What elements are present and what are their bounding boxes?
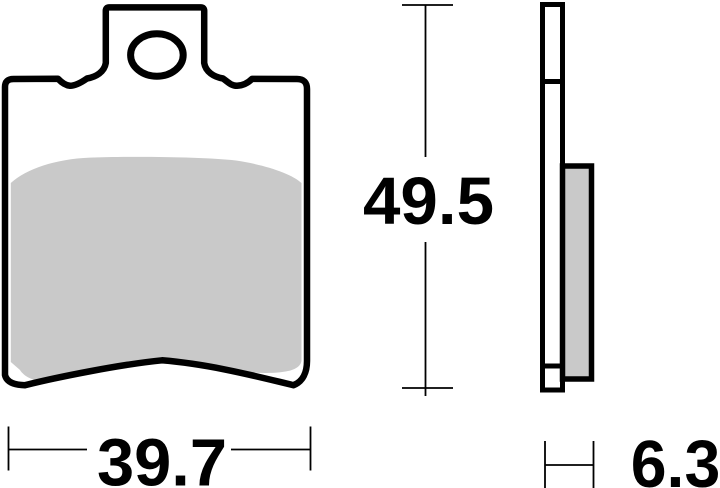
svg-text:49.5: 49.5 <box>363 164 494 239</box>
svg-text:6.3: 6.3 <box>631 427 720 488</box>
svg-text:39.7: 39.7 <box>97 425 227 488</box>
